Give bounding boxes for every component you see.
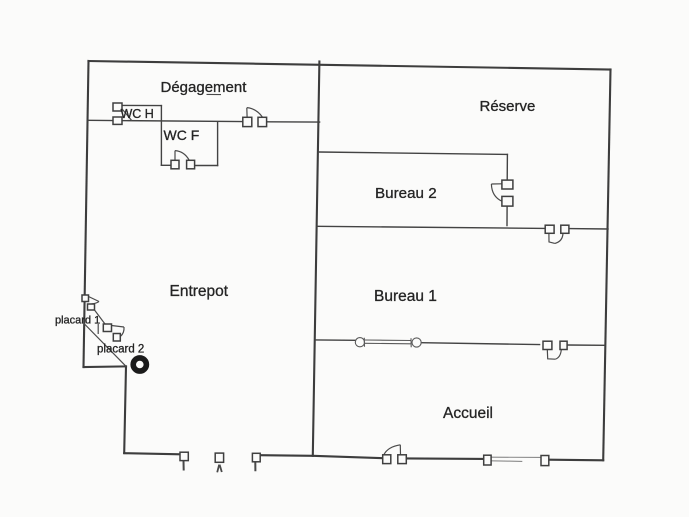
svg-text:Entrepot: Entrepot xyxy=(170,283,229,300)
svg-text:Accueil: Accueil xyxy=(443,405,493,422)
svg-text:WC F: WC F xyxy=(164,127,200,143)
svg-text:placard 1: placard 1 xyxy=(55,315,100,327)
svg-text:Réserve: Réserve xyxy=(480,98,536,115)
svg-text:Bureau 2: Bureau 2 xyxy=(375,185,437,202)
svg-text:WC H: WC H xyxy=(121,107,154,121)
svg-text:placard 2: placard 2 xyxy=(97,344,144,356)
svg-text:Bureau 1: Bureau 1 xyxy=(374,288,437,305)
svg-text:Dégagement: Dégagement xyxy=(161,79,248,96)
